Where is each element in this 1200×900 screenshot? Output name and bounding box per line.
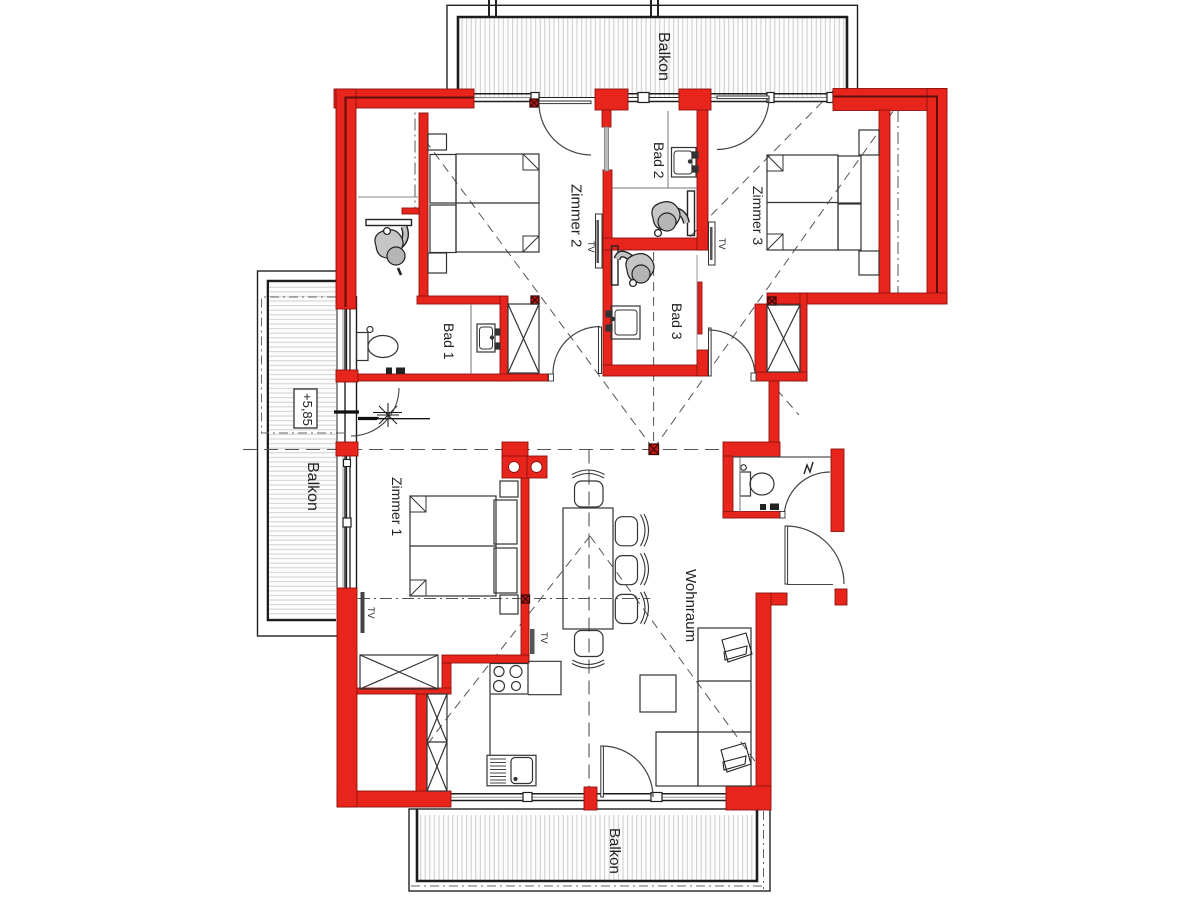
svg-text:Zimmer 1: Zimmer 1 [389,477,405,536]
svg-text:Zimmer 3: Zimmer 3 [750,186,766,245]
svg-text:TV: TV [539,632,549,644]
svg-text:TV: TV [366,607,376,619]
svg-text:Bad 2: Bad 2 [651,142,667,179]
svg-text:+5,85: +5,85 [300,393,315,426]
svg-text:TV: TV [586,241,596,253]
svg-text:Balkon: Balkon [655,32,672,81]
svg-text:Bad 3: Bad 3 [669,303,685,340]
svg-text:Wohnraum: Wohnraum [682,569,699,642]
svg-text:TV: TV [717,238,727,250]
svg-text:Balkon: Balkon [304,462,321,511]
svg-text:Balkon: Balkon [606,828,623,874]
svg-text:Zimmer 2: Zimmer 2 [568,184,585,247]
svg-text:Bad 1: Bad 1 [441,323,457,360]
